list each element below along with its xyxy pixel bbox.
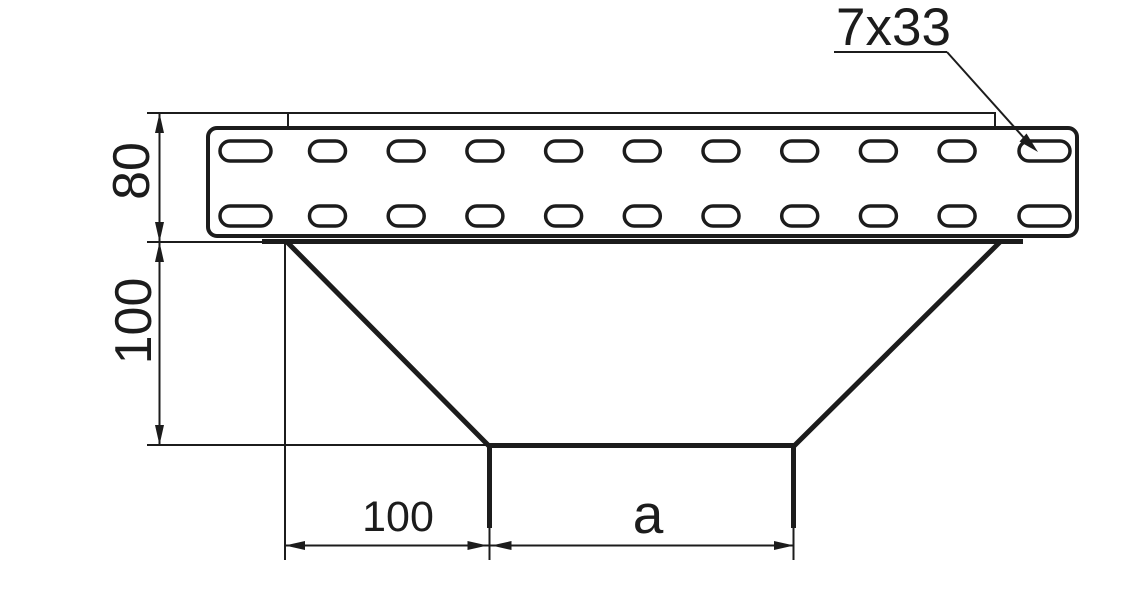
slot bbox=[467, 141, 503, 161]
arrowhead-left-icon bbox=[285, 541, 305, 550]
slot bbox=[467, 206, 503, 226]
slot bbox=[703, 141, 739, 161]
slot bbox=[220, 206, 271, 226]
arrowhead-up-icon bbox=[155, 113, 164, 133]
dimension-label-funnel-drop: 100 bbox=[105, 278, 163, 365]
slot bbox=[388, 141, 424, 161]
slot bbox=[703, 206, 739, 226]
slot bbox=[220, 141, 271, 161]
slot bbox=[310, 141, 346, 161]
dimension-label-rail-height: 80 bbox=[103, 142, 161, 200]
slot bbox=[546, 141, 582, 161]
slot bbox=[310, 206, 346, 226]
dimension-label-bottom-offset: 100 bbox=[362, 493, 434, 541]
arrowhead-down-icon bbox=[155, 425, 164, 445]
back-plate bbox=[288, 113, 995, 128]
slot bbox=[860, 206, 896, 226]
slot bbox=[546, 206, 582, 226]
arrowhead-right-icon bbox=[774, 541, 794, 550]
arrowhead-right-icon bbox=[468, 541, 488, 550]
slot bbox=[1019, 206, 1070, 226]
slot bbox=[939, 141, 975, 161]
dimension-label-opening-width: a bbox=[633, 483, 664, 545]
slot bbox=[860, 141, 896, 161]
arrowhead-down-icon bbox=[155, 222, 164, 242]
slot bbox=[388, 206, 424, 226]
arrowhead-left-icon bbox=[492, 541, 512, 550]
slot bbox=[782, 206, 818, 226]
slot bbox=[782, 141, 818, 161]
slot bbox=[624, 141, 660, 161]
slot bbox=[939, 206, 975, 226]
reducer-funnel-outline bbox=[286, 241, 1001, 446]
slot bbox=[624, 206, 660, 226]
slot-spec-callout-label: 7x33 bbox=[836, 0, 951, 57]
technical-drawing-canvas: 80 100 100 a 7x33 bbox=[0, 0, 1128, 615]
arrowhead-up-icon bbox=[155, 242, 164, 262]
drawing-svg: 80 100 100 a 7x33 bbox=[0, 0, 1128, 615]
